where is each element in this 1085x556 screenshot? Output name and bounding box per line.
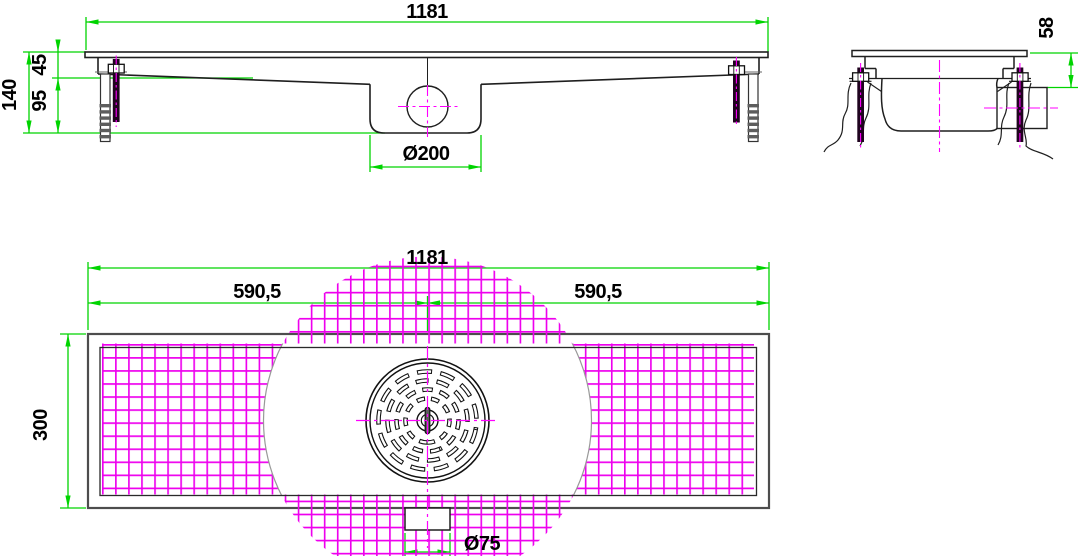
end-section-view: 58 <box>824 17 1078 159</box>
side-left-anchor-bolt <box>108 56 124 128</box>
end-centerlines <box>940 60 1059 152</box>
side-elevation-view: 1181 140 45 95 Ø200 <box>0 1 768 172</box>
plan-view: 1181 590,5 590,5 300 Ø75 <box>30 247 769 556</box>
dim-plan-right-half: 590,5 <box>574 281 622 303</box>
drawing-canvas: 1181 140 45 95 Ø200 <box>0 0 1085 556</box>
dim-plan-width: 300 <box>30 409 52 441</box>
end-dimension-lines <box>1030 53 1078 88</box>
side-right-anchor-bolt <box>729 57 745 127</box>
side-dimension-lines <box>23 17 768 172</box>
dim-side-sump-diameter: Ø200 <box>403 143 450 165</box>
dim-side-bottom-height: 95 <box>29 90 51 112</box>
side-right-foot <box>748 74 760 142</box>
dim-side-top-height: 45 <box>29 54 51 76</box>
side-channel-body <box>85 52 768 133</box>
end-left-anchor-bolt <box>853 63 869 150</box>
dim-side-total-height: 140 <box>0 79 21 111</box>
dim-side-length: 1181 <box>406 1 448 23</box>
side-left-foot <box>100 74 112 142</box>
dim-plan-left-half: 590,5 <box>233 281 281 303</box>
technical-drawing: 1181 140 45 95 Ø200 <box>0 0 1085 556</box>
dim-plan-outlet-diameter: Ø75 <box>464 533 501 555</box>
dim-end-height: 58 <box>1036 17 1058 39</box>
dim-plan-length: 1181 <box>406 247 448 269</box>
